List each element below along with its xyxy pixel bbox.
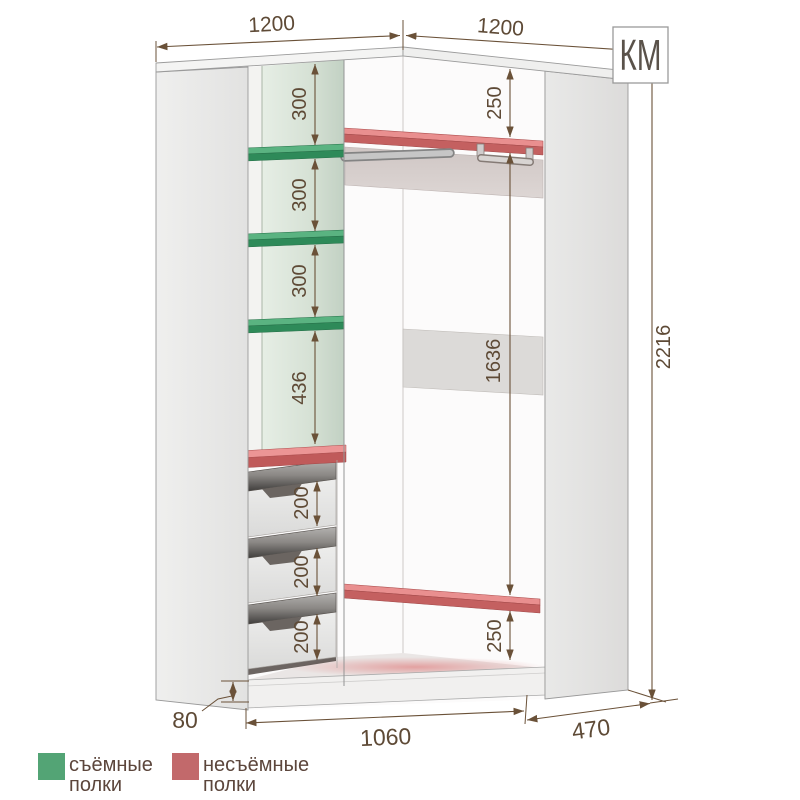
logo-text: КМ xyxy=(620,31,662,80)
legend: съёмные полки несъёмные полки xyxy=(38,753,309,796)
dim-plinth-label: 80 xyxy=(172,707,198,733)
dim-drawer1-label: 200 xyxy=(291,486,313,519)
dim-depth-label: 470 xyxy=(570,714,611,745)
left-panel-inner-face xyxy=(249,66,262,452)
dim-top-right-label: 1200 xyxy=(476,14,524,41)
dim-right-bottom-label: 250 xyxy=(484,619,506,652)
ext-bottom-right xyxy=(628,690,666,702)
dim-gap3-label: 300 xyxy=(289,264,311,297)
right-side-panel xyxy=(545,71,628,699)
brand-logo: КМ xyxy=(613,27,668,83)
dim-gap1-label: 300 xyxy=(289,87,311,120)
legend-removable-line2: полки xyxy=(69,774,122,796)
legend-swatch-removable xyxy=(38,753,65,780)
dim-right-top-label: 250 xyxy=(484,86,506,119)
dim-gap4-label: 436 xyxy=(289,371,311,404)
ext-depth-overshoot xyxy=(650,699,678,703)
wardrobe-svg: 1200 1200 300 300 300 436 200 200 200 25… xyxy=(0,0,800,800)
dim-gap2-label: 300 xyxy=(289,178,311,211)
dim-drawer3-label: 200 xyxy=(291,620,313,653)
corner-wardrobe-drawing: 1200 1200 300 300 300 436 200 200 200 25… xyxy=(0,0,800,800)
dim-hang-label: 1636 xyxy=(483,339,505,384)
legend-fixed-line2: полки xyxy=(203,774,256,796)
back-band-middle xyxy=(403,329,543,395)
dim-drawer2-label: 200 xyxy=(291,555,313,588)
dim-front-label: 1060 xyxy=(360,723,412,751)
legend-removable-line1: съёмные xyxy=(69,754,153,776)
hanging-rod-left-highlight xyxy=(345,153,450,157)
legend-fixed-line1: несъёмные xyxy=(203,754,309,776)
dim-height-label: 2216 xyxy=(653,325,675,370)
legend-swatch-fixed xyxy=(172,753,199,780)
left-side-panel xyxy=(156,67,248,710)
dim-top-left-line xyxy=(157,36,400,48)
dim-top-left-label: 1200 xyxy=(248,12,296,37)
wardrobe-body xyxy=(156,47,628,710)
dim-front-line xyxy=(246,711,524,723)
